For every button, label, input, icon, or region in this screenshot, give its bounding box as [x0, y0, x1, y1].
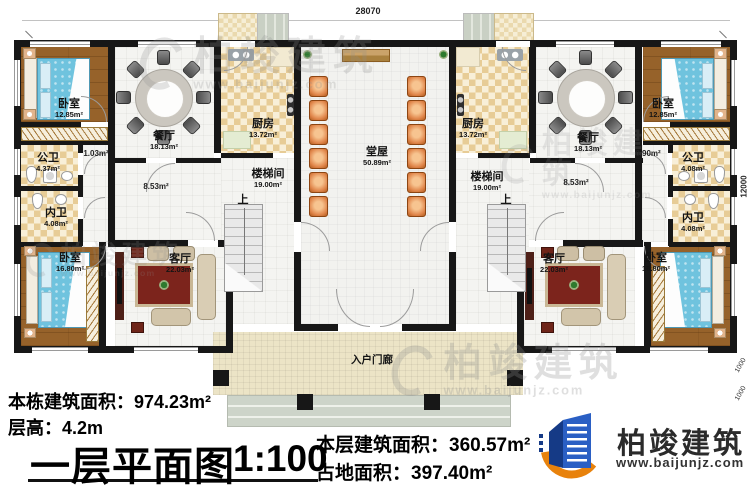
- wall: [673, 186, 730, 191]
- total-area-text: 本栋建筑面积：974.23m²: [8, 388, 211, 414]
- corridor-dim-left: 8.53m²: [143, 182, 168, 191]
- chair-icon: [548, 116, 568, 136]
- nightstand: [24, 328, 36, 338]
- porch-column: [297, 394, 313, 410]
- rear-steps: [463, 13, 495, 42]
- plant-icon: [569, 280, 579, 290]
- wall: [670, 122, 730, 127]
- plant-icon: [303, 50, 312, 59]
- room-label-private-bath-left: 内卫4.08m²: [44, 207, 68, 228]
- land-area-text: 占地面积：397.40m²: [316, 458, 492, 485]
- table-top: [146, 80, 184, 118]
- hall-chair-icon: [309, 148, 328, 169]
- hall-chair-icon: [309, 124, 328, 145]
- chair-icon: [157, 50, 170, 65]
- room-name: 公卫: [681, 152, 705, 165]
- bed-headboard: [712, 256, 724, 324]
- top-dimension-line: [22, 20, 730, 21]
- nightstand: [23, 48, 36, 59]
- nightstand: [24, 246, 36, 256]
- porch-column: [507, 370, 523, 386]
- nightstand: [714, 48, 727, 59]
- room-area: 18.13m²: [574, 145, 602, 154]
- hall-chair-icon: [309, 172, 328, 193]
- plant-icon: [159, 280, 169, 290]
- wall: [294, 324, 338, 331]
- pillow: [700, 258, 711, 288]
- window: [731, 197, 737, 225]
- dining-table-icon: [135, 69, 193, 127]
- room-area: 19.00m²: [252, 181, 285, 190]
- hall-table: [342, 49, 390, 62]
- wall: [605, 158, 643, 163]
- room-area: 22.03m²: [540, 266, 568, 275]
- window: [14, 197, 20, 225]
- wall: [478, 153, 530, 158]
- room-area: 13.72m²: [249, 131, 277, 140]
- window: [14, 264, 20, 316]
- tick-mark: [25, 31, 33, 39]
- window: [552, 347, 616, 353]
- staircase-right: [487, 204, 526, 292]
- stair-break-line: [225, 263, 262, 291]
- pillow: [702, 63, 713, 89]
- room-name: 客厅: [166, 253, 194, 266]
- rear-steps: [257, 13, 289, 42]
- chaise: [561, 308, 601, 326]
- wall: [176, 158, 221, 163]
- stairs-up-label-left: 上: [238, 191, 249, 207]
- pillow: [40, 63, 51, 89]
- window: [32, 347, 88, 353]
- room-label-porch: 入户门廊: [351, 354, 393, 366]
- stove-icon: [287, 94, 294, 116]
- room-label-kitchen-left: 厨房13.72m²: [249, 118, 277, 139]
- room-name: 客厅: [540, 253, 568, 266]
- wall: [21, 186, 78, 191]
- brand-logo-icon: [533, 408, 613, 480]
- room-area: 4.37m²: [36, 165, 60, 174]
- pillow: [702, 92, 713, 118]
- hall-chair-icon: [309, 196, 328, 217]
- window: [134, 347, 198, 353]
- sofa-icon: [607, 254, 626, 320]
- staircase-left: [224, 204, 263, 292]
- chair-icon: [116, 91, 131, 104]
- wall: [21, 122, 81, 127]
- wall: [21, 141, 108, 145]
- nightstand: [23, 109, 36, 120]
- nightstand: [714, 328, 726, 338]
- right-dimension-label: 12000: [740, 175, 749, 197]
- room-label-public-bath-right: 公卫4.08m²: [681, 152, 705, 173]
- wall: [669, 242, 737, 247]
- tick-mark: [719, 31, 727, 39]
- plant-icon: [439, 50, 448, 59]
- armchair: [583, 246, 605, 261]
- sink-icon: [61, 171, 73, 181]
- window: [661, 41, 721, 47]
- room-area: 50.89m²: [363, 159, 391, 168]
- nightstand: [714, 246, 726, 256]
- wardrobe: [652, 266, 665, 342]
- kitchen-counter: [456, 47, 480, 67]
- hall-chair-icon: [309, 100, 328, 121]
- table-top: [568, 80, 606, 118]
- room-area: 4.08m²: [44, 220, 68, 229]
- window: [138, 41, 196, 47]
- stair-break-line: [488, 263, 525, 291]
- room-label-bedroom-tl: 卧室12.85m²: [55, 98, 83, 119]
- right-dimension-small: 1000: [734, 385, 748, 402]
- room-name: 入户门廊: [351, 354, 393, 366]
- wall: [14, 40, 737, 47]
- window: [30, 41, 90, 47]
- room-label-living-left: 客厅22.03m²: [166, 253, 194, 274]
- room-label-bedroom-tr: 卧室12.85m²: [649, 98, 677, 119]
- hall-chair-icon: [407, 100, 426, 121]
- room-label-dining-left: 餐厅18.13m²: [150, 130, 178, 151]
- window: [556, 41, 614, 47]
- chair-icon: [182, 116, 202, 136]
- brand-url: www.baijunjz.com: [616, 455, 744, 470]
- wall: [643, 141, 730, 145]
- chair-icon: [196, 91, 211, 104]
- chair-icon: [126, 116, 146, 136]
- sink-icon: [55, 194, 67, 205]
- wall: [449, 47, 456, 222]
- stove-icon: [457, 94, 464, 116]
- room-area: 4.08m²: [681, 165, 705, 174]
- side-table: [541, 322, 554, 333]
- closet: [21, 127, 108, 141]
- rear-landing: [218, 13, 258, 42]
- top-dimension-label: 28070: [355, 6, 380, 16]
- plan-scale: 1:100: [233, 438, 328, 480]
- chair-icon: [604, 60, 624, 80]
- hall-chair-icon: [407, 148, 426, 169]
- corridor-dim-right: 8.53m²: [563, 178, 588, 187]
- window: [14, 60, 20, 106]
- hall-chair-icon: [309, 76, 328, 97]
- room-label-dining-right: 餐厅18.13m²: [574, 132, 602, 153]
- room-area: 12.85m²: [649, 111, 677, 120]
- hall-chair-icon: [407, 196, 426, 217]
- gap-dim-left: 1.03m²: [83, 149, 108, 158]
- wall: [635, 47, 642, 242]
- porch-column: [213, 370, 229, 386]
- chair-icon: [182, 60, 202, 80]
- window: [14, 149, 20, 175]
- front-steps: [227, 395, 511, 427]
- room-name: 楼梯间: [471, 171, 504, 184]
- wall: [108, 158, 146, 163]
- room-name: 卧室: [642, 252, 670, 265]
- sofa-icon: [197, 254, 216, 320]
- wall: [78, 175, 83, 197]
- chair-icon: [548, 60, 568, 80]
- chair-icon: [579, 50, 592, 65]
- pillow: [40, 92, 51, 118]
- wall: [294, 252, 301, 324]
- chaise: [151, 308, 191, 326]
- room-name: 卧室: [56, 252, 84, 265]
- hall-chair-icon: [407, 124, 426, 145]
- room-label-hall: 堂屋50.89m²: [363, 146, 391, 167]
- kitchen-mat: [223, 131, 251, 149]
- room-area: 16.80m²: [642, 265, 670, 274]
- room-label-living-right: 客厅22.03m²: [540, 253, 568, 274]
- wall: [214, 47, 221, 153]
- closet: [643, 127, 730, 141]
- floor-plan: 28070: [0, 0, 750, 485]
- pillow: [41, 258, 52, 288]
- chair-icon: [538, 91, 553, 104]
- tv-icon: [527, 268, 532, 304]
- room-name: 卧室: [55, 98, 83, 111]
- kitchen-mat: [499, 131, 527, 149]
- room-name: 内卫: [44, 207, 68, 220]
- wall: [530, 158, 575, 163]
- room-area: 12.85m²: [55, 111, 83, 120]
- chair-icon: [618, 91, 633, 104]
- room-name: 楼梯间: [252, 168, 285, 181]
- room-label-kitchen-right: 厨房13.72m²: [459, 118, 487, 139]
- porch-column: [424, 394, 440, 410]
- window: [731, 60, 737, 106]
- tv-icon: [117, 268, 122, 304]
- room-area: 19.00m²: [471, 184, 504, 193]
- wall: [294, 47, 301, 222]
- side-table: [131, 247, 144, 258]
- chair-icon: [126, 60, 146, 80]
- room-area: 18.13m²: [150, 143, 178, 152]
- wall: [529, 47, 536, 153]
- room-name: 卧室: [649, 98, 677, 111]
- pillow: [41, 292, 52, 322]
- room-name: 餐厅: [150, 130, 178, 143]
- stairs-up-label-right: 上: [501, 191, 512, 207]
- window: [650, 347, 708, 353]
- room-area: 13.72m²: [459, 131, 487, 140]
- room-name: 厨房: [249, 118, 277, 131]
- room-label-bedroom-br: 卧室16.80m²: [642, 252, 670, 273]
- room-label-public-bath-left: 公卫4.37m²: [36, 152, 60, 173]
- room-name: 餐厅: [574, 132, 602, 145]
- room-area: 22.03m²: [166, 266, 194, 275]
- room-name: 内卫: [681, 212, 705, 225]
- floor-area-text: 本层建筑面积：360.57m²: [316, 430, 530, 457]
- wall: [449, 252, 456, 324]
- wall: [402, 324, 456, 331]
- room-name: 厨房: [459, 118, 487, 131]
- room-name: 堂屋: [363, 146, 391, 159]
- room-label-stairwell-right: 楼梯间19.00m²: [471, 171, 504, 192]
- gap-dim-right: 0.90m²: [635, 149, 660, 158]
- nightstand: [714, 109, 727, 120]
- chair-icon: [604, 116, 624, 136]
- plan-title: 一层平面图: [30, 434, 235, 485]
- room-label-bedroom-bl: 卧室16.80m²: [56, 252, 84, 273]
- bed-headboard: [26, 256, 38, 324]
- room-name: 公卫: [36, 152, 60, 165]
- window: [731, 149, 737, 175]
- side-table: [131, 322, 144, 333]
- sink-icon: [684, 194, 696, 205]
- room-area: 4.08m²: [681, 225, 705, 234]
- dining-table-icon: [557, 69, 615, 127]
- window: [731, 264, 737, 316]
- room-label-stairwell-left: 楼梯间19.00m²: [252, 168, 285, 189]
- wardrobe: [86, 266, 99, 342]
- room-area: 16.80m²: [56, 265, 84, 274]
- pillow: [700, 292, 711, 322]
- hall-chair-icon: [407, 172, 426, 193]
- kitchen-counter: [270, 47, 294, 67]
- rear-landing: [494, 13, 534, 42]
- hall-chair-icon: [407, 76, 426, 97]
- wall: [221, 153, 273, 158]
- right-dimension-small: 1000: [734, 357, 748, 374]
- room-label-private-bath-right: 内卫4.08m²: [681, 212, 705, 233]
